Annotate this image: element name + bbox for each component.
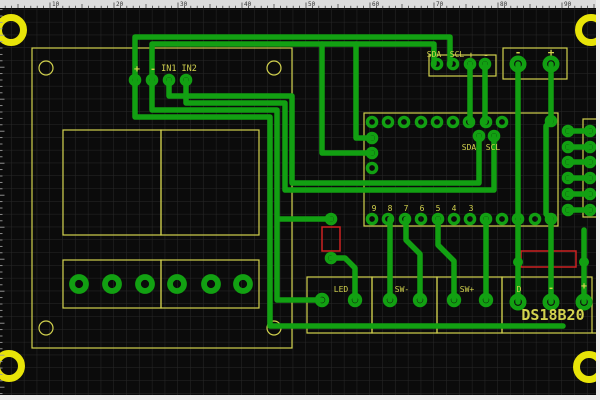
silkscreen-label[interactable]: +: [134, 64, 140, 75]
silkscreen-label[interactable]: -: [150, 64, 156, 75]
pcb-canvas[interactable]: +-IN1 IN2SDASCL+--+SDASCL9876543LEDSW-SW…: [0, 0, 600, 400]
silkscreen-label[interactable]: -: [548, 283, 554, 294]
silkscreen-label[interactable]: -: [515, 46, 522, 59]
silkscreen-label[interactable]: SCL: [450, 50, 465, 59]
silkscreen-label[interactable]: -: [483, 51, 488, 61]
silkscreen-label[interactable]: DS18B20: [521, 306, 584, 324]
silkscreen-label[interactable]: D: [517, 285, 522, 294]
silkscreen-label[interactable]: 7: [404, 204, 409, 213]
ruler-label: 50: [308, 1, 316, 8]
ruler-label: 70: [436, 1, 444, 8]
ruler-label: 60: [372, 1, 380, 8]
ruler-label: 20: [116, 1, 124, 8]
silkscreen-label[interactable]: SDA: [462, 143, 477, 152]
ruler-label: 80: [500, 1, 508, 8]
silkscreen-label[interactable]: 6: [420, 204, 425, 213]
silkscreen-label[interactable]: +: [581, 281, 587, 292]
silkscreen-label[interactable]: 3: [469, 204, 474, 213]
silkscreen-label[interactable]: SCL: [486, 143, 501, 152]
silkscreen-label[interactable]: SDA: [427, 50, 442, 59]
silkscreen-label[interactable]: SW+: [460, 285, 475, 294]
grid: [0, 8, 596, 395]
top-ruler: 102030405060708090: [0, 0, 596, 8]
silkscreen-label[interactable]: 8: [388, 204, 393, 213]
silkscreen-label[interactable]: +: [548, 46, 555, 59]
silkscreen-label[interactable]: 9: [372, 204, 377, 213]
silkscreen-label[interactable]: LED: [334, 285, 349, 294]
silkscreen-label[interactable]: IN1 IN2: [161, 64, 197, 74]
ruler-label: 30: [180, 1, 188, 8]
ruler-label: 40: [244, 1, 252, 8]
silkscreen-label[interactable]: SW-: [395, 285, 409, 294]
silkscreen-label[interactable]: 5: [436, 204, 441, 213]
silkscreen-label[interactable]: +: [468, 51, 474, 61]
right-edge-strip: [596, 0, 600, 400]
silkscreen-label[interactable]: 4: [452, 204, 457, 213]
ruler-label: 10: [52, 1, 60, 8]
pcb-editor-viewport[interactable]: +-IN1 IN2SDASCL+--+SDASCL9876543LEDSW-SW…: [0, 0, 600, 400]
bottom-edge-strip: [0, 395, 600, 400]
ruler-label: 90: [564, 1, 572, 8]
